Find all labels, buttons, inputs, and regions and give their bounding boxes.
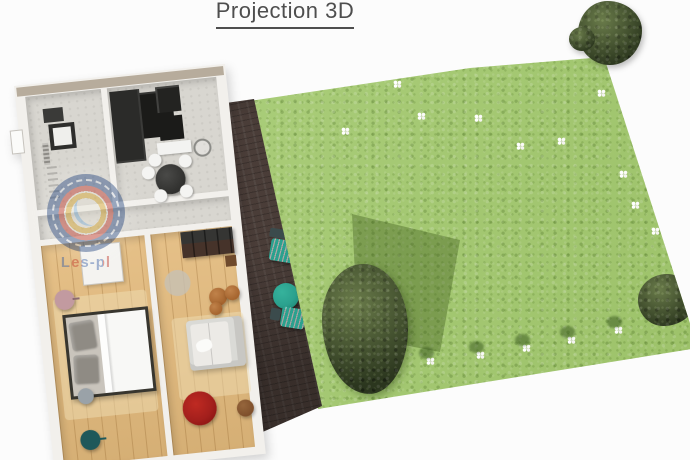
drawer-cabinet bbox=[180, 227, 234, 258]
house-floorplan bbox=[14, 64, 266, 460]
flower bbox=[619, 170, 628, 178]
page-title: Projection 3D bbox=[170, 0, 400, 29]
washing-machine bbox=[48, 122, 77, 151]
bedroom-closet bbox=[79, 242, 124, 286]
room-utility bbox=[25, 89, 112, 210]
garden-tree bbox=[578, 1, 642, 65]
window-sill bbox=[10, 129, 25, 154]
bed-pillow bbox=[68, 319, 96, 351]
page-title-text: Projection 3D bbox=[216, 0, 355, 29]
flower bbox=[393, 80, 402, 88]
side-table bbox=[225, 255, 237, 267]
kitchen-oven bbox=[158, 115, 184, 141]
kitchen-chair bbox=[179, 184, 193, 198]
flower bbox=[474, 114, 483, 122]
wall-shelf bbox=[46, 162, 60, 199]
sofa bbox=[186, 316, 247, 372]
flower bbox=[631, 201, 640, 209]
flower bbox=[567, 336, 576, 344]
bed-pillow bbox=[73, 354, 98, 383]
flower bbox=[426, 357, 435, 365]
garden-bush-right bbox=[638, 274, 690, 326]
utility-cabinet bbox=[43, 107, 64, 123]
flower bbox=[522, 344, 531, 352]
flower bbox=[417, 112, 426, 120]
flower bbox=[476, 351, 485, 359]
flower bbox=[516, 142, 525, 150]
double-bed bbox=[62, 306, 156, 400]
brown-pouf bbox=[236, 399, 255, 418]
flower bbox=[614, 326, 623, 334]
kitchen-hood bbox=[155, 85, 182, 113]
flower bbox=[557, 137, 566, 145]
deck-round-table bbox=[273, 283, 299, 309]
garden-bush bbox=[322, 264, 408, 394]
flower bbox=[341, 127, 350, 135]
flower bbox=[597, 89, 606, 97]
flower bbox=[651, 227, 660, 235]
projection-3d-viewport[interactable]: Projection 3D bbox=[0, 0, 690, 460]
kitchen-chair bbox=[154, 189, 168, 203]
